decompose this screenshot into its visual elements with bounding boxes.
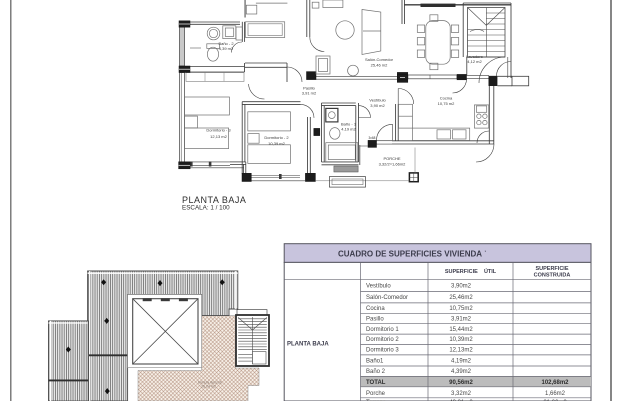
- svg-text:10,39m2: 10,39m2: [449, 337, 473, 343]
- svg-text:SUPERFICIE: SUPERFICIE: [535, 266, 568, 272]
- svg-text:25,46 m2: 25,46 m2: [371, 63, 388, 68]
- svg-text:90,56m2: 90,56m2: [449, 380, 473, 386]
- svg-text:15,44m2: 15,44m2: [449, 327, 473, 333]
- svg-text:Dormitorio 2: Dormitorio 2: [366, 337, 399, 343]
- svg-text:Cocina: Cocina: [366, 306, 385, 312]
- svg-text:10,75m2: 10,75m2: [449, 306, 473, 312]
- svg-text:Porche: Porche: [366, 391, 386, 397]
- svg-text:3,91 m2: 3,91 m2: [302, 91, 317, 96]
- svg-text:10,75 m2: 10,75 m2: [438, 101, 455, 106]
- svg-text:Vestíbulo: Vestíbulo: [366, 283, 391, 289]
- svg-text:3,91m2: 3,91m2: [451, 316, 472, 322]
- svg-text:Dormitorio 3: Dormitorio 3: [366, 348, 399, 354]
- svg-text:3,90m2: 3,90m2: [451, 283, 472, 289]
- svg-text:Salón-Comedor: Salón-Comedor: [366, 295, 408, 301]
- svg-text:12,13m2: 12,13m2: [449, 348, 473, 354]
- svg-text:3,32/2=1,66m2: 3,32/2=1,66m2: [379, 162, 407, 167]
- svg-text:CONSTRUIDA: CONSTRUIDA: [534, 272, 571, 278]
- svg-text:ESCALA: 1 / 100: ESCALA: 1 / 100: [182, 205, 230, 212]
- svg-text:4,39m2: 4,39m2: [451, 369, 472, 375]
- svg-text:4,12 m2: 4,12 m2: [467, 59, 482, 64]
- svg-text:PORCHE: PORCHE: [383, 156, 400, 161]
- svg-text:Dormitorio 1: Dormitorio 1: [366, 327, 399, 333]
- svg-text:Cocina: Cocina: [440, 96, 453, 101]
- svg-text:25,46m2: 25,46m2: [449, 295, 473, 301]
- svg-text:102,68m2: 102,68m2: [541, 380, 569, 386]
- svg-text:Baño1: Baño1: [366, 358, 384, 364]
- svg-text:SUPERFICIE ÚTIL: SUPERFICIE ÚTIL: [445, 268, 497, 275]
- svg-text:Baño 2: Baño 2: [366, 369, 386, 375]
- svg-text:4,19m2: 4,19m2: [451, 358, 472, 364]
- svg-text:Pasillo: Pasillo: [366, 316, 384, 322]
- svg-text:3,32m2: 3,32m2: [451, 391, 472, 397]
- svg-text:PLANTA BAJA: PLANTA BAJA: [287, 341, 329, 347]
- svg-text:Salón-Comedor: Salón-Comedor: [365, 57, 394, 62]
- svg-text:PLANTA BAJA: PLANTA BAJA: [182, 195, 246, 205]
- svg-text:4,39 m2: 4,39 m2: [219, 46, 234, 51]
- svg-text:Dormitorio - 2: Dormitorio - 2: [264, 135, 289, 140]
- svg-text:Vestíbulo: Vestíbulo: [369, 98, 386, 103]
- svg-text:3x68: 3x68: [369, 136, 376, 140]
- svg-text:Dormitorio - 3: Dormitorio - 3: [206, 128, 231, 133]
- svg-text:TOTAL: TOTAL: [366, 380, 386, 386]
- svg-text:3,90 m2: 3,90 m2: [370, 103, 385, 108]
- svg-text:4,19 m2: 4,19 m2: [341, 127, 356, 132]
- svg-text:26,24 m2: 26,24 m2: [201, 384, 216, 388]
- svg-text:CUADRO DE SUPERFICIES VIVIEND: CUADRO DE SUPERFICIES VIVIENDA ʾ: [338, 250, 487, 259]
- svg-text:10,39 m2: 10,39 m2: [268, 141, 285, 146]
- svg-text:1,66m2: 1,66m2: [545, 391, 566, 397]
- svg-text:12,13 m2: 12,13 m2: [210, 134, 227, 139]
